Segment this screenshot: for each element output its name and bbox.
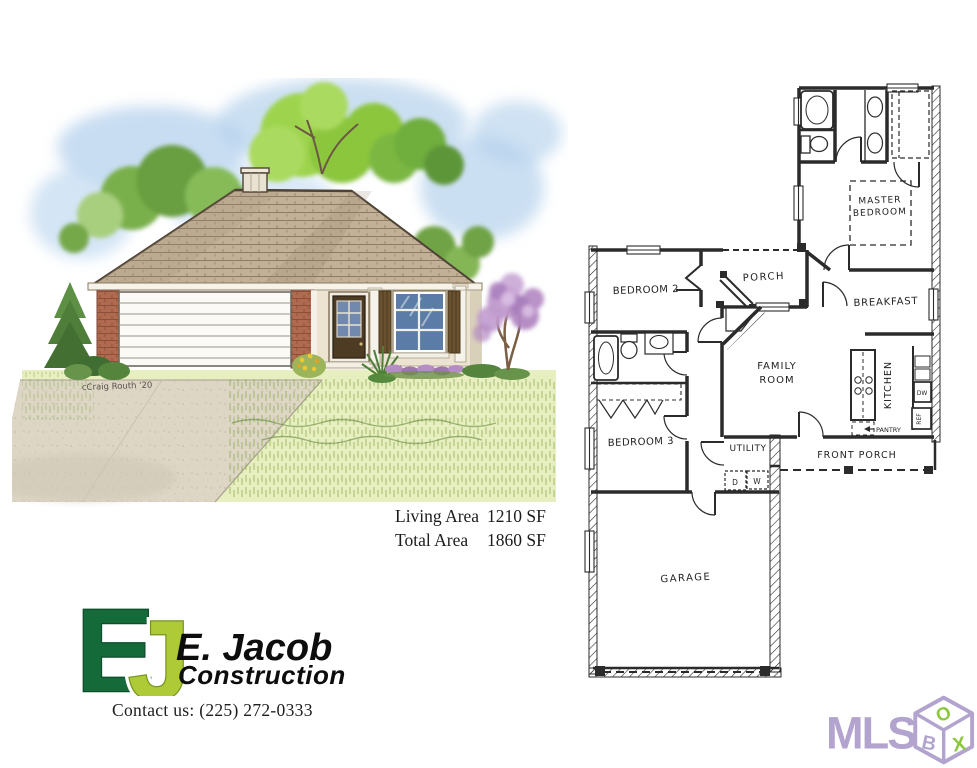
label-front-porch: FRONT PORCH xyxy=(817,450,897,461)
mls-text: MLS xyxy=(828,708,916,759)
label-porch: PORCH xyxy=(742,271,785,284)
front-door xyxy=(321,292,377,374)
chimney xyxy=(243,173,267,192)
label-kitchen: KITCHEN xyxy=(883,361,894,409)
label-family-2: ROOM xyxy=(759,375,794,386)
label-ref: REF xyxy=(916,413,923,425)
corner-fireplace xyxy=(723,307,765,350)
front-window xyxy=(379,291,460,358)
label-washer: W xyxy=(753,477,761,486)
label-utility: UTILITY xyxy=(730,444,767,454)
living-area-label: Living Area xyxy=(395,506,487,527)
windows xyxy=(585,84,938,572)
chimney-cap xyxy=(241,168,269,173)
mls-cube: O B X xyxy=(915,698,972,763)
master-closet xyxy=(892,91,929,158)
label-family-1: FAMILY xyxy=(757,361,797,372)
garage-door xyxy=(119,292,291,366)
bedroom3-closet xyxy=(597,384,681,418)
hall-bath-fixtures xyxy=(594,333,673,380)
contact-line: Contact us: (225) 272-0333 xyxy=(112,700,313,721)
house-illustration: cCraig Routh '20 xyxy=(12,78,568,508)
total-area-value: 1860 SF xyxy=(487,530,565,551)
label-bedroom2: BEDROOM 2 xyxy=(613,284,680,297)
label-master-1: MASTER xyxy=(858,195,901,206)
label-master-2: BEDROOM xyxy=(853,207,907,219)
company-logo: E J J E. Jacob Construction xyxy=(70,596,370,696)
fascia xyxy=(88,283,482,290)
living-area-value: 1210 SF xyxy=(487,506,565,527)
label-dryer: D xyxy=(732,478,738,487)
mls-box-logo: MLS O B X xyxy=(828,692,977,768)
label-garage: GARAGE xyxy=(660,572,711,586)
shutter-left xyxy=(379,291,391,353)
page: cCraig Routh '20 xyxy=(0,0,977,768)
logo-tagline: Construction xyxy=(178,660,346,690)
area-summary: Living Area 1210 SF Total Area 1860 SF xyxy=(395,506,565,551)
grass-texture xyxy=(227,378,556,498)
shutter-right xyxy=(448,291,460,353)
total-area-label: Total Area xyxy=(395,530,487,551)
house-front xyxy=(88,284,482,374)
label-dishwasher: DW xyxy=(917,390,928,397)
master-bath-fixtures xyxy=(801,90,883,162)
label-pantry: PANTRY xyxy=(876,426,901,434)
floor-plan: MASTER BEDROOM PORCH BEDROOM 2 BREAKFAST… xyxy=(583,78,955,696)
label-bedroom3: BEDROOM 3 xyxy=(608,436,675,449)
label-breakfast: BREAKFAST xyxy=(853,296,918,309)
pantry-arrow xyxy=(864,426,874,432)
crape-myrtle-tree xyxy=(473,273,544,370)
